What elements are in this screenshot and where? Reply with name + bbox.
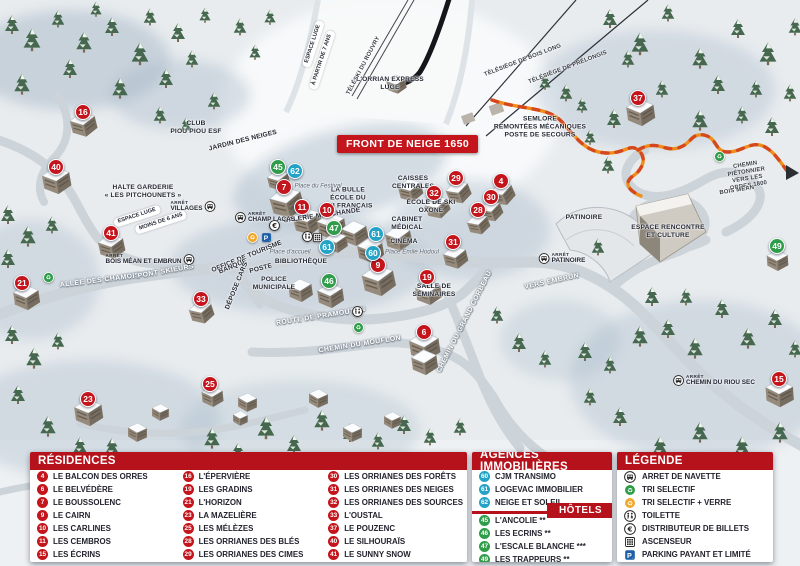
map-marker-37: 37 [630, 90, 646, 106]
legende-panel: LÉGENDE ARRET DE NAVETTE♻TRI SELECTIF♻TR… [617, 452, 773, 562]
residence-item: 10LES CARLINES [30, 522, 176, 535]
agence-badge: 60 [479, 471, 490, 482]
map-label: TÉLÉSIÈGE DE PRÉLONGIS [528, 50, 609, 86]
map-marker-45: 45 [270, 159, 286, 175]
map-label: VERS EMBRUN [524, 272, 580, 291]
map-label: Place d'accueil [269, 248, 310, 255]
recycle-green-icon: ♻ [353, 322, 364, 333]
residence-label: LE SUNNY SNOW [344, 550, 411, 559]
residence-item: 30LES ORRIANES DES FORÊTS [321, 470, 467, 483]
map-label: CHEMIN DU GRAND CORBEAU [436, 270, 494, 374]
svg-text:P: P [263, 235, 268, 242]
residence-badge: 11 [37, 536, 48, 547]
resort-map: 1640412133232571110919629324302831371562… [0, 0, 800, 566]
residence-badge: 6 [37, 484, 48, 495]
map-label: BIBLIOTHÈQUE [275, 258, 327, 266]
map-marker-23: 23 [80, 391, 96, 407]
bus-icon [183, 254, 194, 265]
residences-column: 30LES ORRIANES DES FORÊTS31LES ORRIANES … [321, 470, 467, 561]
residence-label: LE POUZENC [344, 524, 395, 533]
map-label: HALTE GARDERIE « LES PITCHOUNETS » [105, 184, 182, 200]
residences-list: 4LE BALCON DES ORRES6LE BELVÉDÈRE7LE BOU… [30, 470, 467, 561]
residence-label: LE BOUSSOLENC [53, 498, 121, 507]
residence-badge: 21 [183, 497, 194, 508]
residence-label: LA MAZELIÈRE [199, 511, 257, 520]
bus-stop: ARRÊTVILLAGES [171, 200, 216, 212]
elevator-icon [624, 536, 636, 548]
residence-item: 16L'ÉPERVIÈRE [176, 470, 322, 483]
recycle-yellow-icon: ♻ [624, 497, 636, 509]
hotel-badge: 45 [479, 515, 490, 526]
map-label: POSTE [249, 262, 274, 276]
residence-badge: 16 [183, 471, 194, 482]
residence-badge: 19 [183, 484, 194, 495]
map-label: CABINET MÉDICAL [391, 216, 422, 232]
hotels-section: HÔTELS [472, 511, 612, 514]
bus-stop-name: BOIS MÉAN ET EMBRUN [106, 258, 182, 265]
map-marker-7: 7 [276, 179, 292, 195]
residence-item: 9LE CAIRN [30, 509, 176, 522]
residence-label: LES CEMBROS [53, 537, 111, 546]
map-marker-28: 28 [470, 202, 486, 218]
residence-item: 6LE BELVÉDÈRE [30, 483, 176, 496]
map-label: BOIS MÉAN [719, 185, 755, 197]
parking-icon: P. [624, 549, 636, 561]
map-marker-60: 60 [365, 245, 381, 261]
legende-label: TRI SELECTIF + VERRE [642, 498, 731, 507]
legende-label: TRI SELECTIF [642, 485, 695, 494]
map-label: SEMLORE REMONTÉES MÉCANIQUES POSTE DE SE… [494, 115, 586, 138]
bus-icon [624, 471, 636, 483]
map-label: ALLÉE DES CHAMOIS [59, 272, 140, 290]
map-label: MOINS DE 6 ANS [134, 210, 188, 235]
hotel-item: 47L'ESCALE BLANCHE *** [472, 540, 612, 553]
map-label: CINÉMA [390, 238, 417, 246]
legende-list: ARRET DE NAVETTE♻TRI SELECTIF♻TRI SELECT… [617, 470, 773, 561]
euro-icon: € [624, 523, 636, 535]
residence-item: 25LES MÉLÈZES [176, 522, 322, 535]
map-marker-16: 16 [75, 104, 91, 120]
residence-badge: 15 [37, 549, 48, 560]
map-label: CHEMIN PIÉTONNIER VERS LES ORRES 1800 [719, 158, 776, 194]
map-label: ESPACE LUGE [113, 205, 161, 228]
legende-label: TOILETTE [642, 511, 680, 520]
map-marker-31: 31 [445, 234, 461, 250]
residence-badge: 28 [183, 536, 194, 547]
residence-badge: 30 [328, 471, 339, 482]
map-label: POLICE MUNICIPALE [253, 276, 296, 292]
hotel-badge: 47 [479, 541, 490, 552]
legende-item: ♻TRI SELECTIF [617, 483, 773, 496]
hotel-badge: 49 [479, 554, 490, 562]
map-label: PATINOIRE [566, 214, 603, 222]
residence-label: LE BALCON DES ORRES [53, 472, 148, 481]
legende-label: DISTRIBUTEUR DE BILLETS [642, 524, 749, 533]
residence-label: LE SILHOURAÏS [344, 537, 405, 546]
residence-label: LES ORRIANES DES BLÉS [199, 537, 300, 546]
residence-badge: 9 [37, 510, 48, 521]
hotels-header: HÔTELS [547, 503, 612, 518]
map-label: TÉLÉSIÈGE DE BOIS LONG [483, 43, 562, 79]
bus-icon [204, 201, 215, 212]
residence-badge: 29 [183, 549, 194, 560]
hotel-label: L'ESCALE BLANCHE *** [495, 542, 586, 551]
svg-text:.: . [268, 237, 269, 241]
residence-badge: 31 [328, 484, 339, 495]
svg-text:♻: ♻ [627, 486, 633, 494]
residence-badge: 25 [183, 523, 194, 534]
toilet-icon [352, 306, 363, 317]
map-marker-49: 49 [769, 238, 785, 254]
bus-stop-label: ARRÊTPATINOIRE [552, 252, 586, 264]
bus-stop-label: ARRÊTCHAMP LACAS [248, 211, 295, 223]
map-label: ÉCOLE DE SKI OXONE [407, 199, 456, 215]
bus-icon [235, 212, 246, 223]
hotel-label: L'ANCOLIE ** [495, 516, 546, 525]
residence-badge: 7 [37, 497, 48, 508]
map-marker-10: 10 [319, 202, 335, 218]
residence-badge: 10 [37, 523, 48, 534]
residence-label: LES ORRIANES DES FORÊTS [344, 472, 456, 481]
map-marker-6: 6 [416, 324, 432, 340]
map-marker-33: 33 [193, 291, 209, 307]
residence-item: 31LES ORRIANES DES NEIGES [321, 483, 467, 496]
map-marker-4: 4 [493, 173, 509, 189]
map-marker-19: 19 [419, 269, 435, 285]
agence-item: 61LOGEVAC IMMOBILIER [472, 483, 612, 496]
residence-label: LE BELVÉDÈRE [53, 485, 113, 494]
agence-label: CJM TRANSIMO [495, 472, 556, 481]
svg-text:♻: ♻ [627, 499, 633, 507]
map-marker-47: 47 [326, 220, 342, 236]
residence-badge: 41 [328, 549, 339, 560]
residence-badge: 40 [328, 536, 339, 547]
map-label: PONT SKIEURS [137, 263, 195, 281]
residences-header: RÉSIDENCES [30, 452, 467, 470]
map-label: CLUB PIOU PIOU ESF [170, 120, 221, 136]
residence-item: 4LE BALCON DES ORRES [30, 470, 176, 483]
residence-label: LES CARLINES [53, 524, 111, 533]
residence-label: LES ÉCRINS [53, 550, 100, 559]
map-label: JARDIN DES NEIGES [208, 129, 278, 153]
residence-item: 33L'OUSTAL [321, 509, 467, 522]
bus-stop: ARRÊTPATINOIRE [539, 252, 586, 264]
residence-label: LE CAIRN [53, 511, 90, 520]
residence-label: LES ORRIANES DES SOURCES [344, 498, 463, 507]
map-marker-30: 30 [483, 189, 499, 205]
map-label: Place du Festival [294, 182, 341, 189]
map-label: L'ORRIAN EXPRESS LUGE [356, 76, 424, 92]
bus-stop: ARRÊTCHAMP LACAS [235, 211, 295, 223]
residence-item: 21L'HORIZON [176, 496, 322, 509]
agence-badge: 61 [479, 484, 490, 495]
residence-badge: 32 [328, 497, 339, 508]
residence-item: 37LE POUZENC [321, 522, 467, 535]
hotel-badge: 46 [479, 528, 490, 539]
map-label: BANQUE [218, 258, 249, 276]
map-label: ESPACE LUGE [302, 20, 325, 68]
residence-label: LES GRADINS [199, 485, 253, 494]
map-marker-61: 61 [319, 239, 335, 255]
residence-item: 28LES ORRIANES DES BLÉS [176, 535, 322, 548]
map-marker-29: 29 [448, 170, 464, 186]
recycle-yellow-icon: ♻ [247, 232, 258, 243]
bus-stop-label: ARRÊTCHEMIN DU RIOU SEC [686, 374, 755, 386]
bus-stop-label: ARRÊTVILLAGES [171, 200, 203, 212]
map-label: DÉPOSE CARS [224, 261, 250, 310]
map-label: TÉLÉSKI DU ROUVRY [346, 36, 383, 97]
residence-label: L'OUSTAL [344, 511, 383, 520]
residence-label: L'HORIZON [199, 498, 242, 507]
bus-stop-label: ARRÊTBOIS MÉAN ET EMBRUN [106, 253, 182, 265]
svg-text:.: . [632, 554, 633, 559]
hotel-item: 49LES TRAPPEURS ** [472, 553, 612, 562]
residence-label: LES MÉLÈZES [199, 524, 254, 533]
residence-item: 40LE SILHOURAÏS [321, 535, 467, 548]
bus-stop-name: PATINOIRE [552, 257, 586, 264]
residence-item: 11LES CEMBROS [30, 535, 176, 548]
svg-text:€: € [626, 524, 632, 533]
toilet-icon [624, 510, 636, 522]
bus-stop: ARRÊTBOIS MÉAN ET EMBRUN [106, 253, 195, 265]
residences-column: 16L'ÉPERVIÈRE19LES GRADINS21L'HORIZON23L… [176, 470, 322, 561]
map-marker-62: 62 [287, 163, 303, 179]
svg-text:P: P [627, 550, 632, 559]
map-label: Place Émile Hodoul [385, 248, 439, 255]
residence-item: 41LE SUNNY SNOW [321, 548, 467, 561]
legende-item: TOILETTE [617, 509, 773, 522]
map-marker-46: 46 [321, 273, 337, 289]
legende-item: €DISTRIBUTEUR DE BILLETS [617, 522, 773, 535]
recycle-green-icon: ♻ [43, 272, 54, 283]
legende-label: PARKING PAYANT ET LIMITÉ [642, 550, 751, 559]
residence-item: 7LE BOUSSOLENC [30, 496, 176, 509]
legende-item: ♻TRI SELECTIF + VERRE [617, 496, 773, 509]
map-marker-25: 25 [202, 376, 218, 392]
hotel-item: 46LES ECRINS ** [472, 527, 612, 540]
residence-item: 23LA MAZELIÈRE [176, 509, 322, 522]
svg-text:♻: ♻ [45, 274, 50, 281]
residence-badge: 33 [328, 510, 339, 521]
legende-item: ASCENSEUR [617, 535, 773, 548]
map-marker-41: 41 [103, 225, 119, 241]
map-label: OFFICE DE TOURISME [211, 239, 284, 274]
legende-header: LÉGENDE [617, 452, 773, 470]
svg-text:♻: ♻ [716, 153, 721, 160]
map-marker-11: 11 [294, 199, 310, 215]
legende-item: P.PARKING PAYANT ET LIMITÉ [617, 548, 773, 561]
residence-label: LES ORRIANES DES NEIGES [344, 485, 454, 494]
residences-column: 4LE BALCON DES ORRES6LE BELVÉDÈRE7LE BOU… [30, 470, 176, 561]
bus-icon [539, 253, 550, 264]
residence-item: 32LES ORRIANES DES SOURCES [321, 496, 467, 509]
agences-panel: AGENCES IMMOBILIÈRES 60CJM TRANSIMO61LOG… [472, 452, 612, 562]
residence-label: L'ÉPERVIÈRE [199, 472, 251, 481]
residence-item: 19LES GRADINS [176, 483, 322, 496]
svg-text:♻: ♻ [249, 234, 254, 241]
bus-icon [673, 375, 684, 386]
map-marker-32: 32 [426, 185, 442, 201]
map-marker-15: 15 [771, 371, 787, 387]
hotel-label: LES ECRINS ** [495, 529, 551, 538]
residence-badge: 37 [328, 523, 339, 534]
parking-icon: P. [261, 232, 272, 243]
map-label: SALLE DE SÉMINAIRES [412, 283, 455, 299]
map-marker-21: 21 [14, 275, 30, 291]
bus-stop-name: VILLAGES [171, 205, 203, 212]
recycle-green-icon: ♻ [624, 484, 636, 496]
bus-stop: ARRÊTCHEMIN DU RIOU SEC [673, 374, 755, 386]
map-label: ESPACE RENCONTRE ET CULTURE [631, 224, 704, 240]
map-marker-40: 40 [48, 159, 64, 175]
residence-badge: 23 [183, 510, 194, 521]
bus-stop-name: CHAMP LACAS [248, 216, 295, 223]
front-de-neige-banner: FRONT DE NEIGE 1650 [337, 135, 478, 153]
residence-badge: 4 [37, 471, 48, 482]
svg-text:♻: ♻ [355, 324, 360, 331]
map-label: CHEMIN DU MOUFLON [318, 335, 401, 356]
residence-label: LES ORRIANES DES CIMES [199, 550, 304, 559]
hotel-label: LES TRAPPEURS ** [495, 555, 570, 562]
legende-item: ARRET DE NAVETTE [617, 470, 773, 483]
map-marker-61: 61 [368, 226, 384, 242]
residence-item: 15LES ÉCRINS [30, 548, 176, 561]
residences-panel: RÉSIDENCES 4LE BALCON DES ORRES6LE BELVÉ… [30, 452, 467, 562]
bus-stop-name: CHEMIN DU RIOU SEC [686, 379, 755, 386]
legende-label: ASCENSEUR [642, 537, 692, 546]
agences-header: AGENCES IMMOBILIÈRES [472, 452, 612, 470]
residence-item: 29LES ORRIANES DES CIMES [176, 548, 322, 561]
recycle-green-icon: ♻ [714, 151, 725, 162]
agence-label: LOGEVAC IMMOBILIER [495, 485, 583, 494]
map-label: À PARTIR DE 7 ANS [308, 30, 335, 91]
hotels-list: 45L'ANCOLIE **46LES ECRINS **47L'ESCALE … [472, 514, 612, 562]
legende-label: ARRET DE NAVETTE [642, 472, 721, 481]
agence-badge: 62 [479, 497, 490, 508]
